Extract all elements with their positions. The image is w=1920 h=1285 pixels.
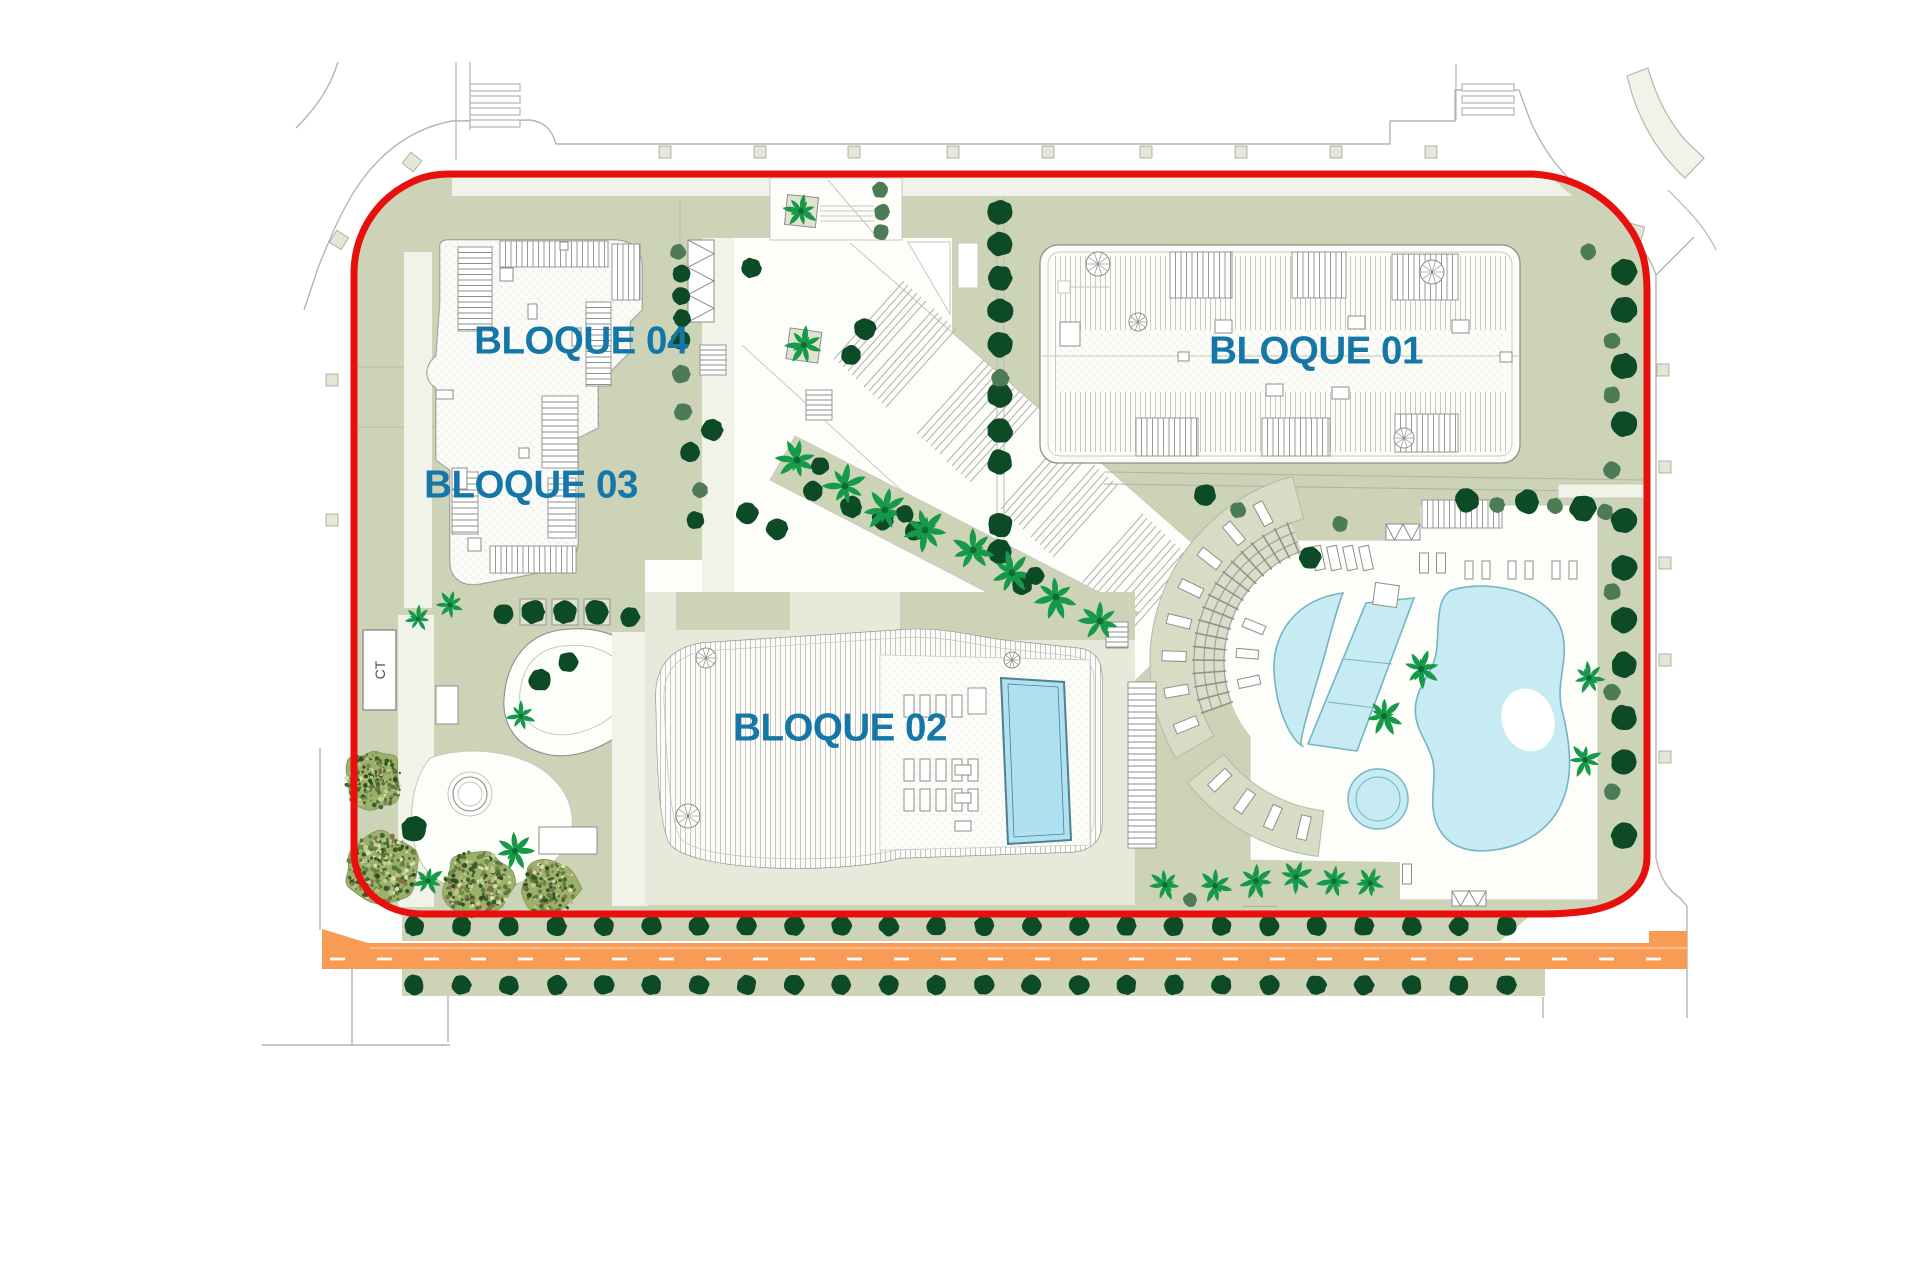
svg-text:BLOQUE 04: BLOQUE 04 (474, 320, 689, 363)
svg-text:CT: CT (372, 660, 388, 679)
svg-text:BLOQUE 03: BLOQUE 03 (424, 464, 638, 507)
svg-text:BLOQUE 02: BLOQUE 02 (733, 707, 947, 750)
svg-text:BLOQUE 01: BLOQUE 01 (1209, 330, 1423, 373)
